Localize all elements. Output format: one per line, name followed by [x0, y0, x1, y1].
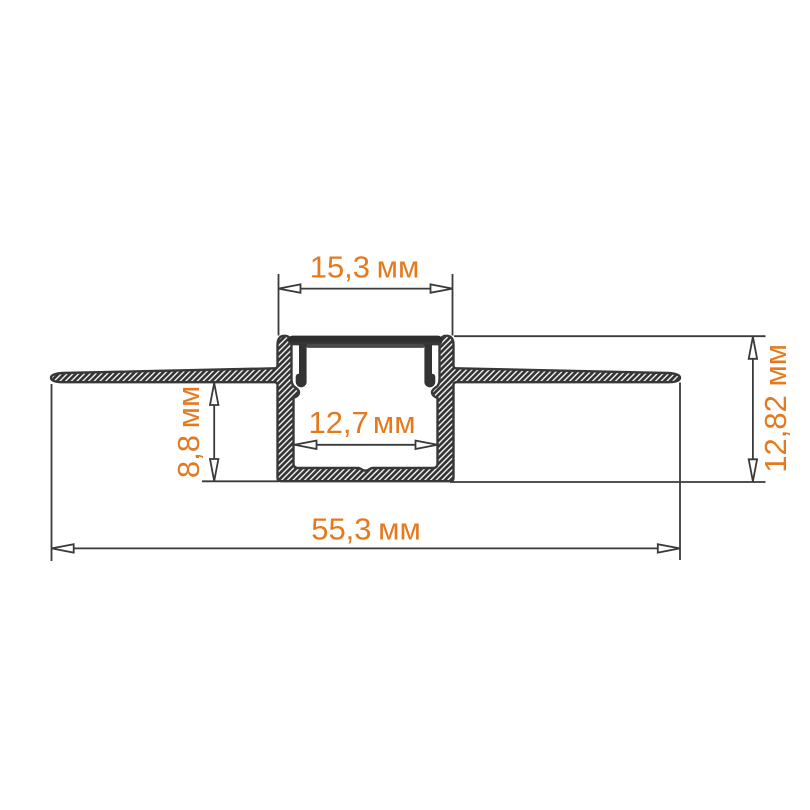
svg-text:15,3 мм: 15,3 мм — [310, 250, 420, 285]
svg-text:12,7 мм: 12,7 мм — [308, 405, 415, 440]
svg-text:55,3 мм: 55,3 мм — [311, 512, 421, 547]
svg-text:8,8 мм: 8,8 мм — [171, 386, 206, 478]
svg-text:12,82 мм: 12,82 мм — [758, 344, 793, 473]
